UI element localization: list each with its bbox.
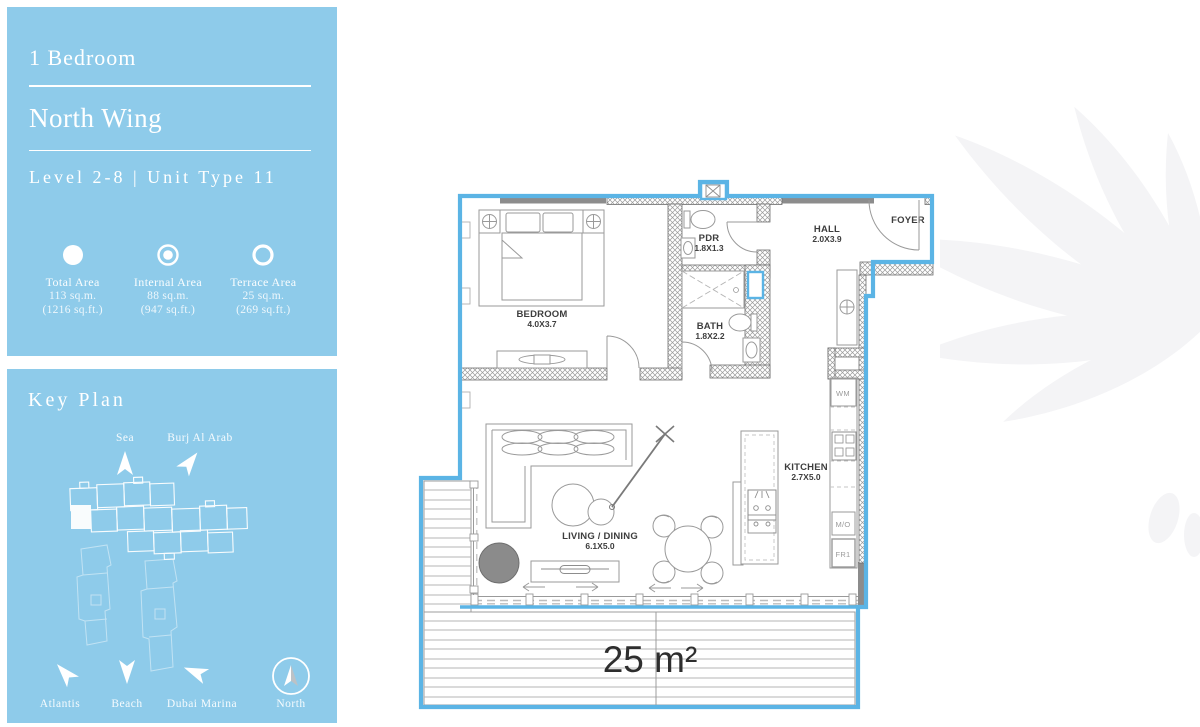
beach-arrow-icon	[119, 660, 135, 684]
sliding-door-arrows	[523, 583, 703, 592]
highlighted-unit	[71, 505, 91, 529]
dining-table	[665, 526, 711, 572]
direction-label-sea: Sea	[116, 432, 134, 444]
stat-label: Total Area	[25, 275, 120, 290]
unit-type-title: 1 Bedroom	[29, 45, 313, 71]
stat-total-area: Total Area 113 sq.m. (1216 sq.ft.)	[25, 243, 120, 317]
stat-label: Terrace Area	[216, 275, 311, 290]
dubai-marina-arrow-icon	[181, 660, 209, 684]
stat-terrace-area: Terrace Area 25 sq.m. (269 sq.ft.)	[216, 243, 311, 317]
shaft	[748, 272, 763, 298]
room-dims-kitchen: 2.7X5.0	[791, 472, 821, 482]
stat-sqft: (269 sq.ft.)	[216, 304, 311, 318]
direction-label-beach: Beach	[111, 698, 142, 710]
key-plan-title: Key Plan	[28, 389, 126, 411]
room-label-foyer: FOYER	[891, 215, 925, 226]
hall-closet	[837, 270, 857, 345]
direction-label-burj-al-arab: Burj Al Arab	[167, 432, 232, 444]
bed	[479, 210, 604, 306]
atlantis-arrow-icon	[51, 659, 79, 688]
toilet-icon	[684, 211, 690, 228]
stat-internal-area: Internal Area 88 sq.m. (947 sq.ft.)	[120, 243, 215, 317]
area-stats: Total Area 113 sq.m. (1216 sq.ft.) Inter…	[7, 243, 337, 317]
key-plan-panel: Key Plan Sea Burj Al Arab	[7, 369, 337, 723]
stat-sqm: 113 sq.m.	[25, 290, 120, 304]
ring-dot-circle-icon	[156, 243, 180, 267]
dining-set	[653, 515, 723, 584]
appliance-label-fr1: FR1	[835, 550, 850, 559]
building-cluster-outline	[70, 474, 249, 563]
tower-outlines	[77, 545, 177, 671]
burner-knobs	[832, 432, 856, 460]
stat-sqm: 25 sq.m.	[216, 290, 311, 304]
appliance-label-mo: M/O	[835, 520, 850, 529]
bath-door	[682, 342, 712, 372]
burj-al-arab-arrow-icon	[176, 448, 203, 477]
stat-sqft: (1216 sq.ft.)	[25, 304, 120, 318]
level-unit-title: Level 2-8 | Unit Type 11	[29, 167, 313, 188]
top-shaft	[701, 183, 726, 199]
appliance-label-wm: WM	[836, 389, 850, 398]
stat-sqm: 88 sq.m.	[120, 290, 215, 304]
room-dims-living-dining: 6.1X5.0	[585, 541, 615, 551]
coffee-tables	[552, 484, 614, 526]
compass-label-north: North	[276, 698, 305, 710]
filled-circle-icon	[61, 243, 85, 267]
dresser	[497, 351, 587, 368]
room-dims-bedroom: 4.0X3.7	[527, 319, 557, 329]
stat-label: Internal Area	[120, 275, 215, 290]
bedroom-door	[607, 336, 639, 368]
toilet-icon	[751, 314, 757, 331]
key-plan-map: Key Plan Sea Burj Al Arab	[7, 369, 337, 723]
tv-console	[531, 561, 619, 582]
info-panel: 1 Bedroom North Wing Level 2-8 | Unit Ty…	[7, 7, 337, 356]
wing-title: North Wing	[29, 103, 313, 134]
divider	[29, 150, 311, 152]
sea-arrow-icon	[117, 451, 133, 475]
stat-sqft: (947 sq.ft.)	[120, 304, 215, 318]
direction-label-atlantis: Atlantis	[40, 698, 80, 710]
divider	[29, 85, 311, 87]
room-dims-bath: 1.8X2.2	[695, 331, 725, 341]
flower-watermark	[940, 0, 1200, 560]
pdr-door	[727, 222, 757, 252]
room-dims-hall: 2.0X3.9	[812, 234, 842, 244]
floor-plan: 25 m²	[400, 170, 960, 727]
pouf	[479, 543, 519, 583]
direction-label-dubai-marina: Dubai Marina	[167, 698, 237, 710]
north-compass	[273, 658, 309, 694]
terrace-area-label: 25 m²	[603, 639, 698, 680]
ring-circle-icon	[251, 243, 275, 267]
room-dims-pdr: 1.8X1.3	[694, 243, 724, 253]
